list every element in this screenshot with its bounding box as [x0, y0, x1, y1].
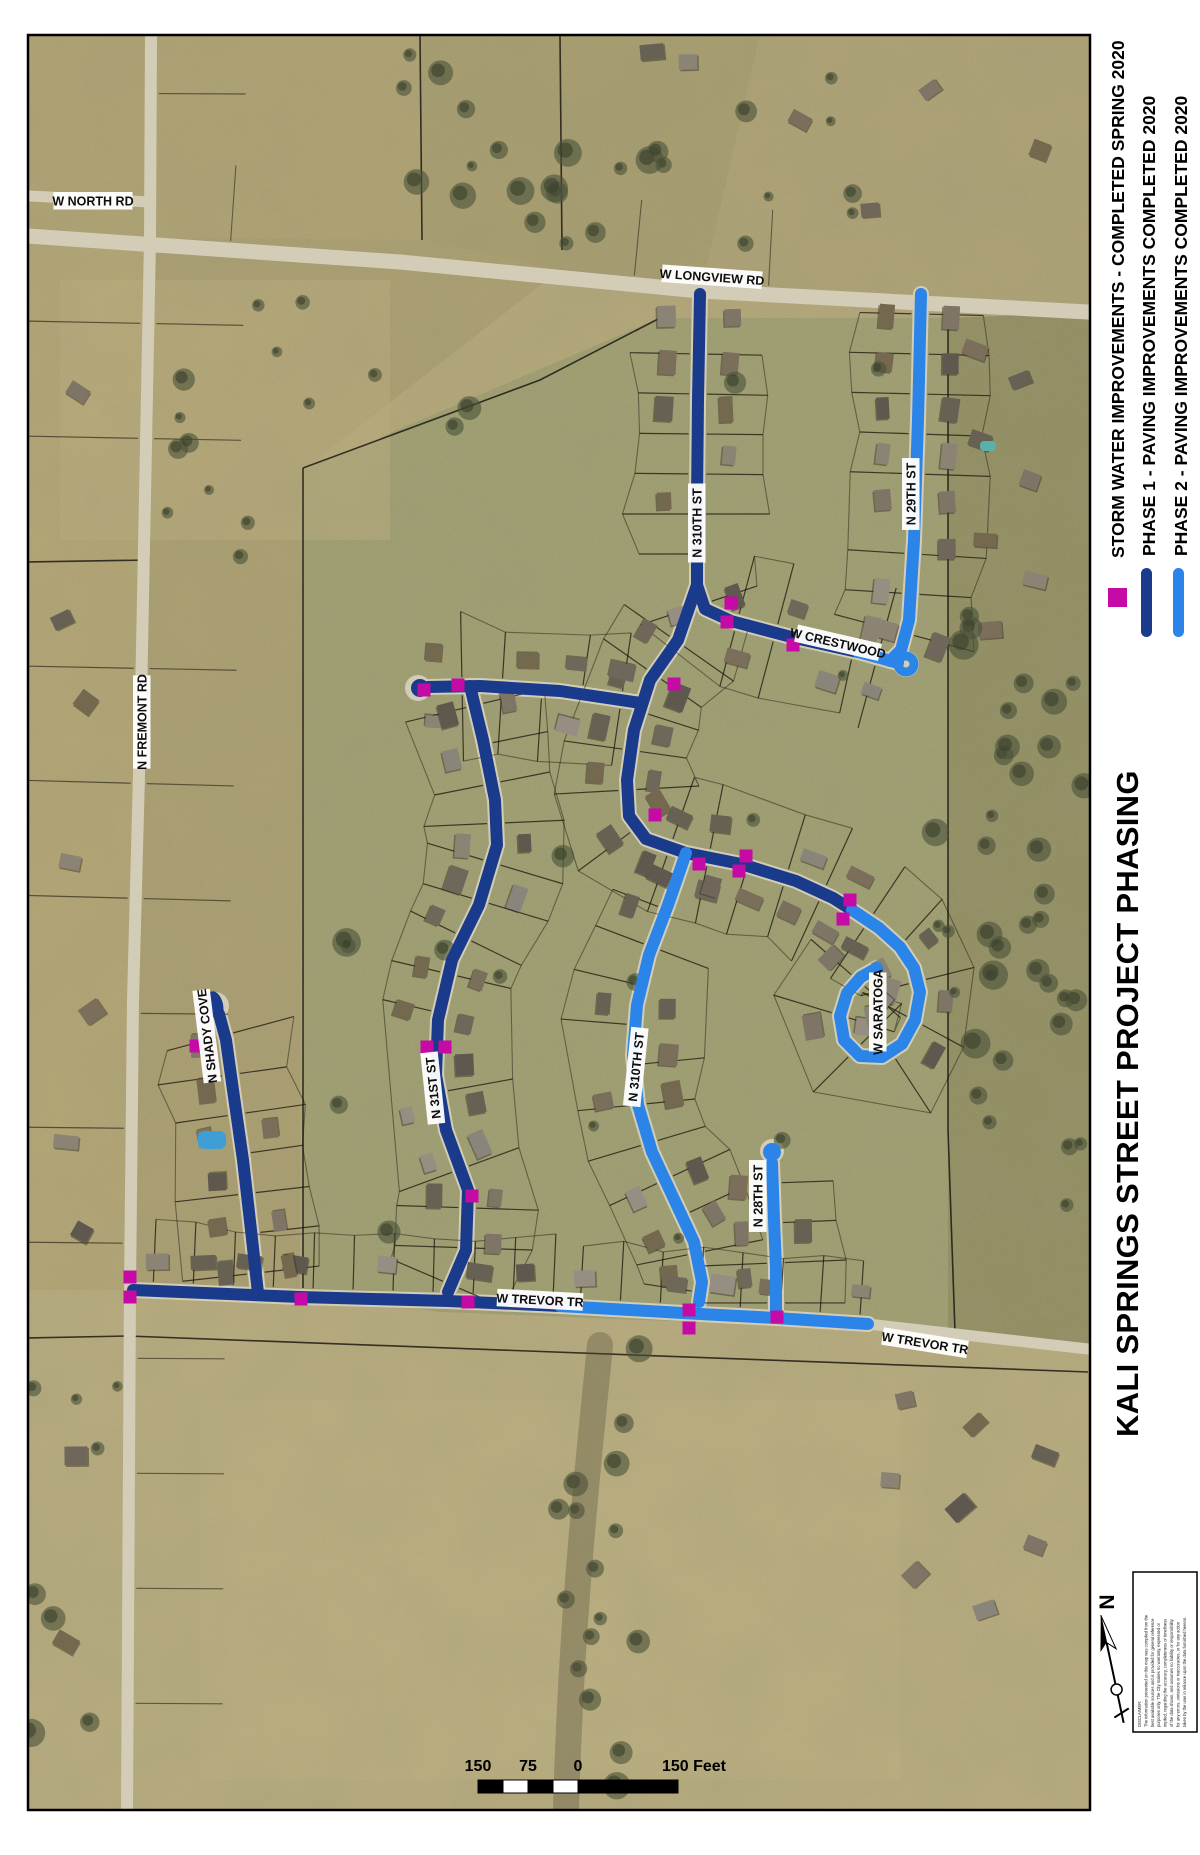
svg-text:DISCLAIMER:: DISCLAIMER:	[1137, 1701, 1142, 1727]
disclaimer-text: DISCLAIMER:The information presented on …	[1137, 1614, 1187, 1727]
storm-water-square	[452, 679, 465, 692]
map-title: KALI SPRINGS STREET PROJECT PHASING	[1110, 770, 1145, 1437]
storm-water-square	[683, 1322, 696, 1335]
storm-water-square	[844, 894, 857, 907]
north-arrow-icon: N	[1093, 1594, 1132, 1724]
north-label: N	[1096, 1594, 1119, 1609]
street-label: N 29TH ST	[902, 458, 920, 530]
phase2-legend-line	[1173, 568, 1184, 637]
storm-water-square	[837, 913, 850, 926]
scale-75: 75	[519, 1758, 537, 1775]
street-label: N 28TH ST	[749, 1160, 767, 1232]
scale-0: 0	[574, 1758, 583, 1775]
storm-water-square	[721, 616, 734, 629]
svg-text:implied, regarding the accurac: implied, regarding the accuracy, complet…	[1163, 1619, 1168, 1727]
disclaimer-box: DISCLAIMER:The information presented on …	[1133, 1572, 1197, 1732]
aerial-basemap: W NORTH RDW LONGVIEW RDN FREMONT RDN 310…	[0, 35, 1097, 1810]
storm-water-square	[439, 1041, 452, 1054]
svg-text:purposes only. The City makes: purposes only. The City makes no warrant…	[1156, 1622, 1161, 1727]
scale-150-left: 150	[465, 1758, 492, 1775]
svg-text:taken by the user in reliance: taken by the user in reliance upon the d…	[1182, 1617, 1187, 1727]
storm-water-square	[740, 850, 753, 863]
storm-water-square	[693, 858, 706, 871]
street-label: W SARATOGA	[869, 969, 887, 1055]
legend-phase2-label: PHASE 2 - PAVING IMPROVEMENTS COMPLETED …	[1171, 95, 1191, 556]
storm-water-square	[124, 1271, 137, 1284]
map-canvas: W NORTH RDW LONGVIEW RDN FREMONT RDN 310…	[0, 0, 1200, 1855]
svg-text:The information presented on t: The information presented on this map wa…	[1143, 1614, 1148, 1727]
street-label: N FREMONT RD	[133, 674, 151, 770]
svg-text:N FREMONT RD: N FREMONT RD	[136, 674, 150, 770]
scale-150-feet: 150 Feet	[662, 1758, 727, 1775]
svg-text:N 29TH ST: N 29TH ST	[905, 462, 919, 525]
svg-text:W NORTH RD: W NORTH RD	[52, 195, 133, 209]
svg-text:N 310TH ST: N 310TH ST	[691, 488, 705, 558]
storm-water-square	[733, 865, 746, 878]
storm-water-square	[295, 1293, 308, 1306]
storm-water-square	[466, 1190, 479, 1203]
svg-text:for any errors, omissions or i: for any errors, omissions or inaccuracie…	[1175, 1621, 1180, 1727]
storm-water-square	[124, 1291, 137, 1304]
svg-text:best available sources and is: best available sources and is provided f…	[1150, 1618, 1155, 1727]
storm-water-square	[668, 678, 681, 691]
storm-water-square	[418, 684, 431, 697]
street-label: N 310TH ST	[688, 484, 706, 563]
svg-text:N 28TH ST: N 28TH ST	[752, 1164, 766, 1227]
legend-phase1-label: PHASE 1 - PAVING IMPROVEMENTS COMPLETED …	[1139, 95, 1159, 556]
legend: STORM WATER IMPROVEMENTS - COMPLETED SPR…	[1108, 40, 1191, 637]
storm-water-legend-swatch	[1108, 588, 1127, 607]
phase1-legend-line	[1141, 568, 1152, 637]
legend-storm-water-label: STORM WATER IMPROVEMENTS - COMPLETED SPR…	[1108, 40, 1128, 558]
street-label: W NORTH RD	[52, 192, 133, 210]
storm-water-square	[725, 597, 738, 610]
map-document: W NORTH RDW LONGVIEW RDN FREMONT RDN 310…	[0, 0, 1200, 1855]
svg-text:of the data shown, and assumes: of the data shown, and assumes no liabil…	[1169, 1618, 1174, 1727]
storm-water-square	[421, 1041, 434, 1054]
storm-water-square	[462, 1296, 475, 1309]
storm-water-square	[649, 809, 662, 822]
storm-water-square	[771, 1311, 784, 1324]
storm-water-square	[683, 1304, 696, 1317]
svg-text:W SARATOGA: W SARATOGA	[872, 969, 886, 1055]
